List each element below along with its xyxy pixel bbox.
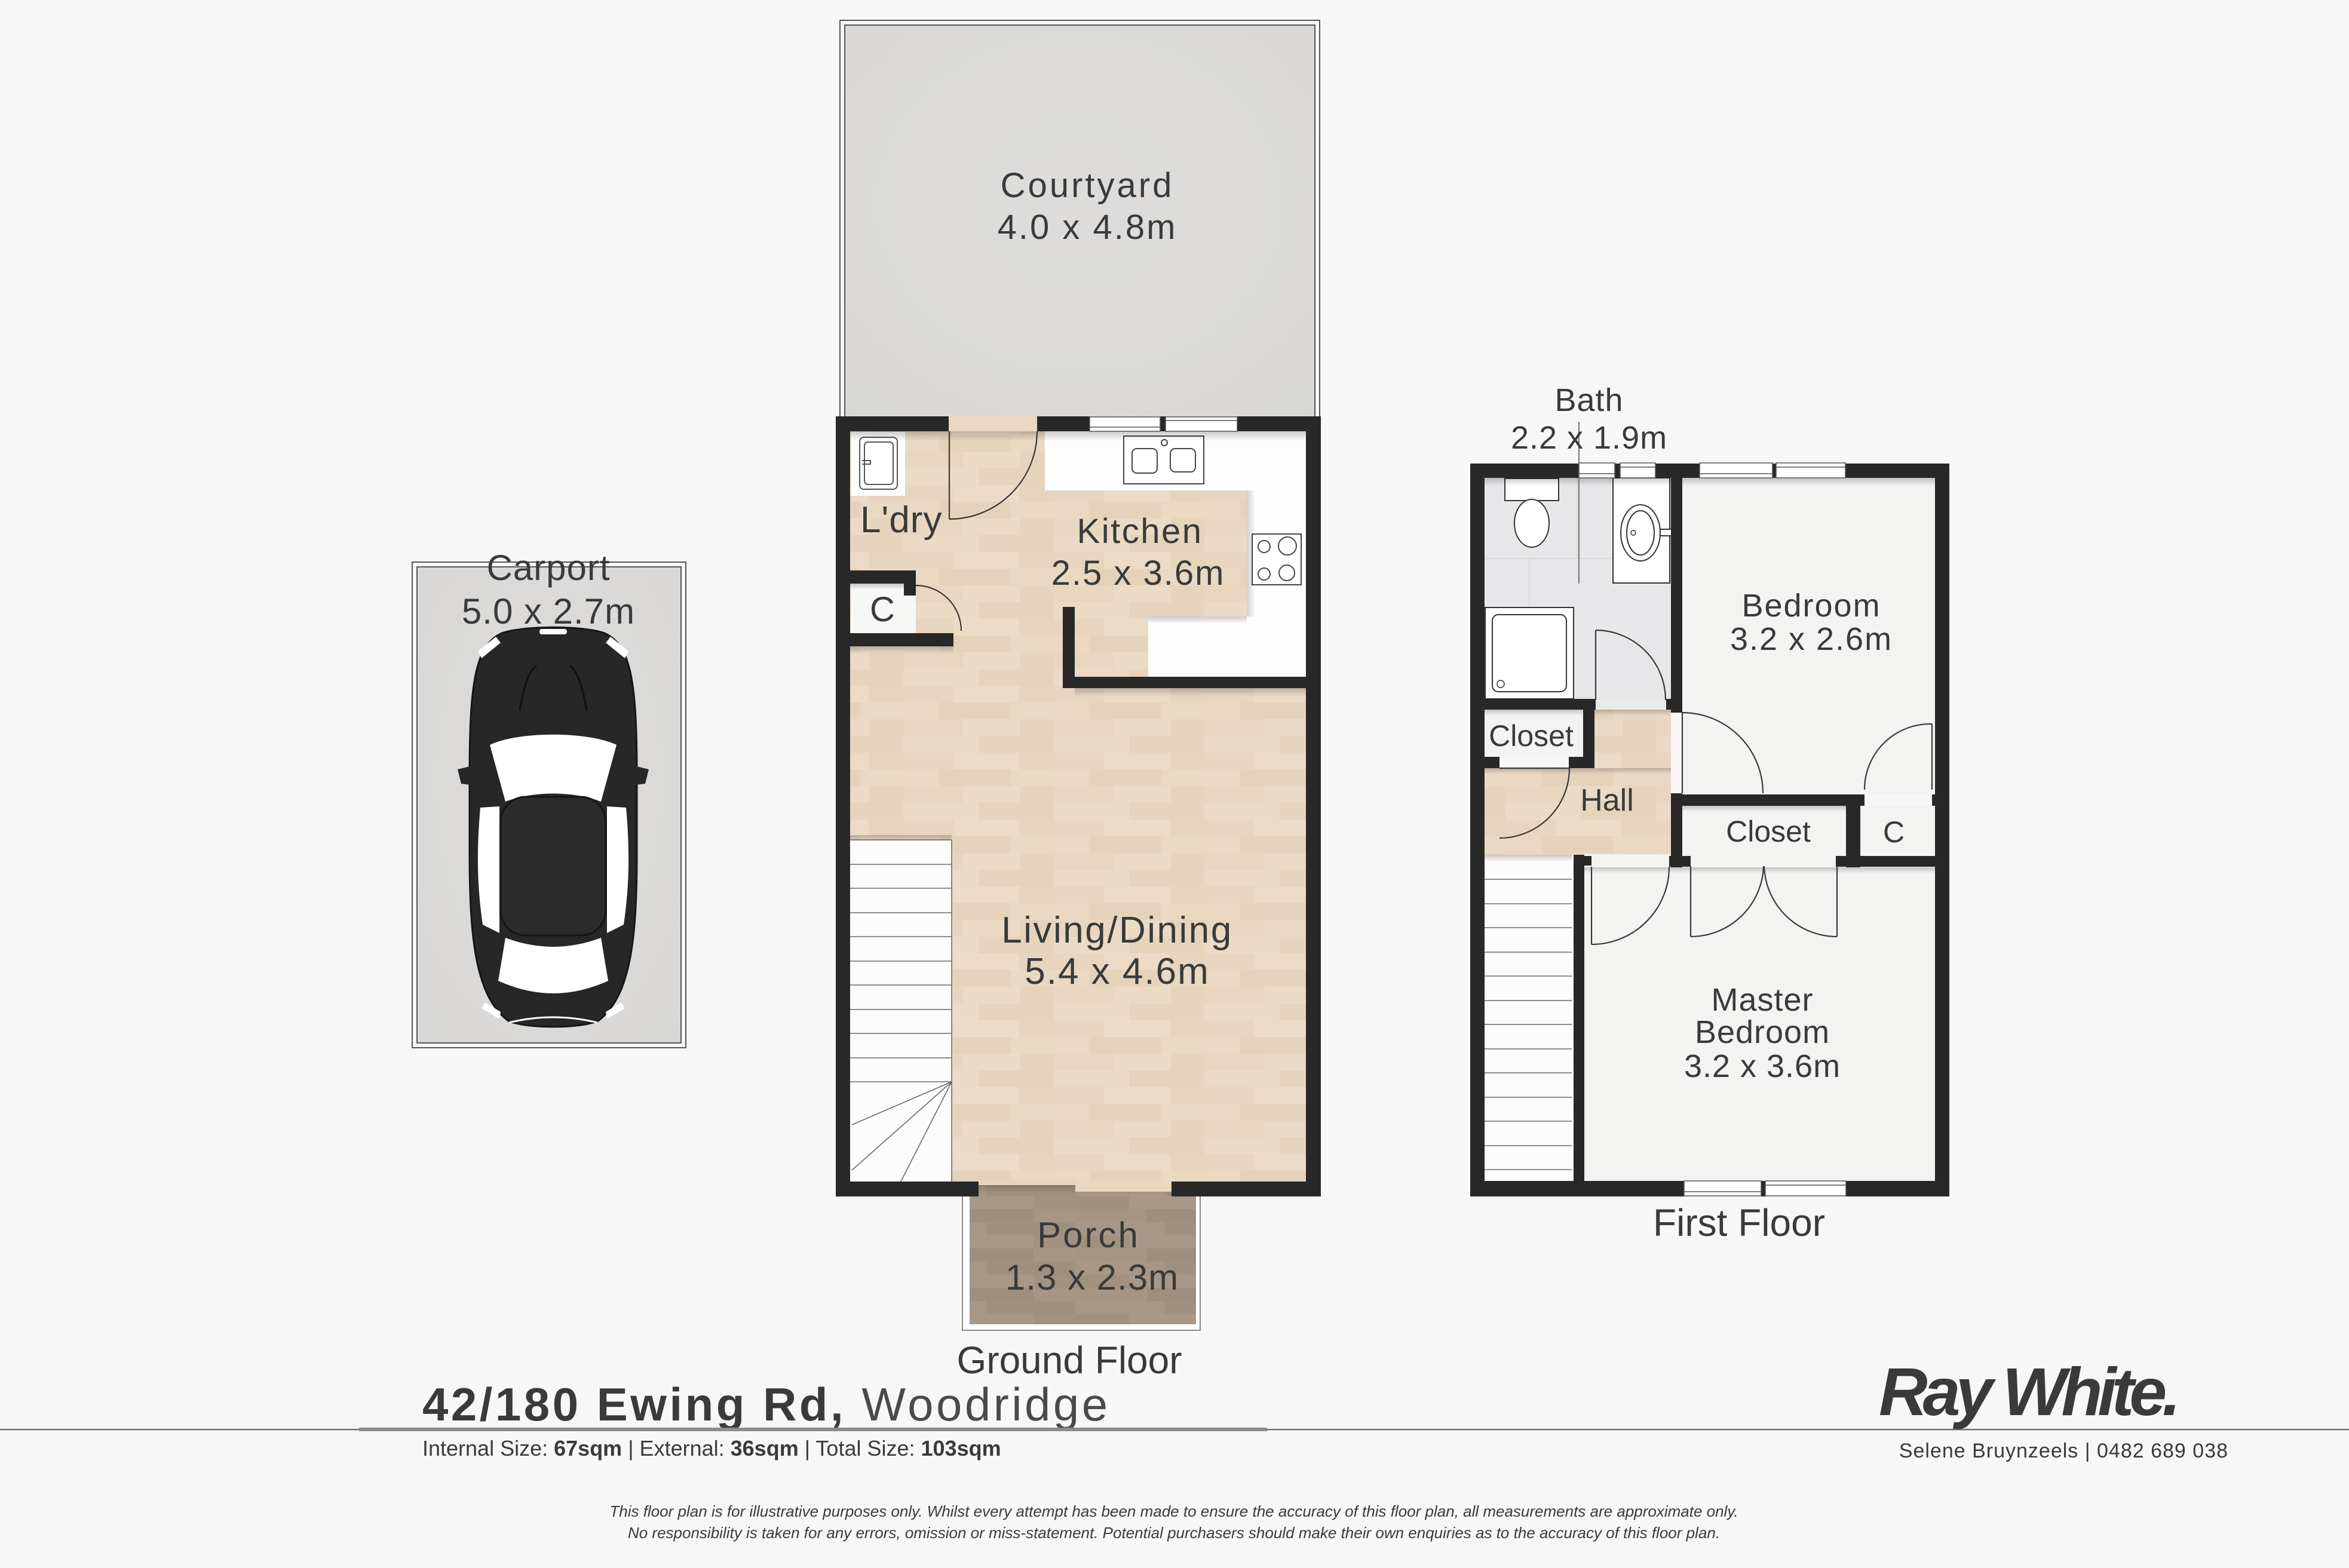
svg-text:42/180 Ewing Rd, Woodridge: 42/180 Ewing Rd, Woodridge — [422, 1378, 1111, 1431]
svg-text:This floor plan is for illustr: This floor plan is for illustrative purp… — [609, 1502, 1738, 1520]
svg-text:Internal Size: 67sqm | Externa: Internal Size: 67sqm | External: 36sqm |… — [422, 1436, 1001, 1460]
svg-text:Bath: Bath — [1554, 382, 1623, 418]
svg-text:Bedroom: Bedroom — [1695, 1014, 1830, 1050]
svg-text:Hall: Hall — [1580, 783, 1634, 818]
svg-text:Courtyard: Courtyard — [1001, 166, 1174, 205]
svg-text:Closet: Closet — [1489, 719, 1574, 753]
svg-text:5.4 x 4.6m: 5.4 x 4.6m — [1025, 951, 1209, 992]
svg-text:Master: Master — [1711, 982, 1813, 1018]
svg-text:3.2 x 3.6m: 3.2 x 3.6m — [1684, 1048, 1841, 1084]
svg-text:Bedroom: Bedroom — [1741, 588, 1881, 624]
svg-text:L'dry: L'dry — [860, 499, 942, 541]
svg-text:Carport: Carport — [486, 548, 610, 588]
svg-text:C: C — [1883, 815, 1905, 849]
svg-text:Porch: Porch — [1037, 1215, 1140, 1255]
svg-text:Closet: Closet — [1726, 815, 1811, 848]
svg-text:2.5 x 3.6m: 2.5 x 3.6m — [1051, 554, 1225, 593]
svg-text:5.0 x 2.7m: 5.0 x 2.7m — [462, 591, 635, 631]
svg-text:1.3 x 2.3m: 1.3 x 2.3m — [1005, 1257, 1179, 1297]
svg-text:Ground Floor: Ground Floor — [956, 1339, 1182, 1382]
svg-text:3.2 x 2.6m: 3.2 x 2.6m — [1730, 621, 1893, 657]
svg-text:Ray White.: Ray White. — [1879, 1354, 2176, 1429]
svg-text:No responsibility is taken for: No responsibility is taken for any error… — [628, 1524, 1720, 1542]
svg-text:Living/Dining: Living/Dining — [1001, 910, 1233, 951]
svg-text:Kitchen: Kitchen — [1077, 512, 1203, 551]
svg-text:4.0 x 4.8m: 4.0 x 4.8m — [998, 208, 1177, 247]
svg-text:2.2 x 1.9m: 2.2 x 1.9m — [1511, 420, 1667, 456]
svg-text:C: C — [870, 590, 895, 629]
svg-text:First Floor: First Floor — [1653, 1201, 1825, 1244]
svg-text:Selene Bruynzeels | 0482 689 0: Selene Bruynzeels | 0482 689 038 — [1899, 1440, 2228, 1462]
